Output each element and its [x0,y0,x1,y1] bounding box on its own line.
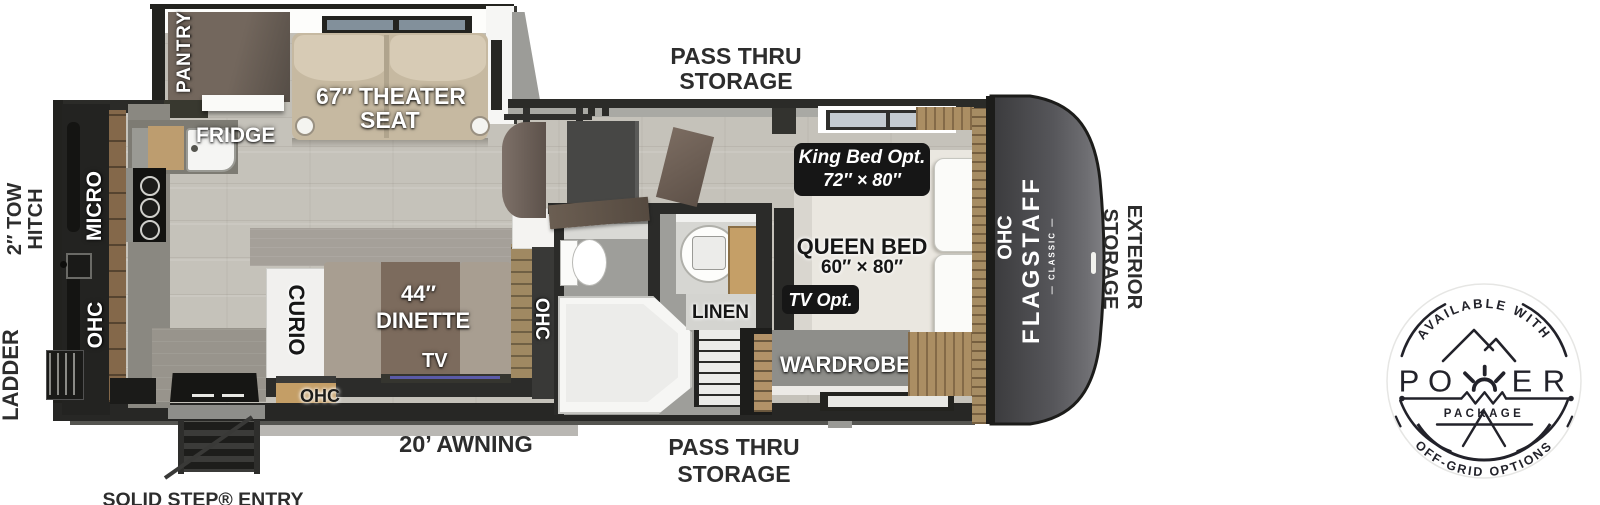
svg-text:O: O [1428,364,1452,399]
svg-text:P: P [1399,364,1420,399]
svg-text:R: R [1543,364,1565,399]
svg-text:E: E [1512,364,1533,399]
